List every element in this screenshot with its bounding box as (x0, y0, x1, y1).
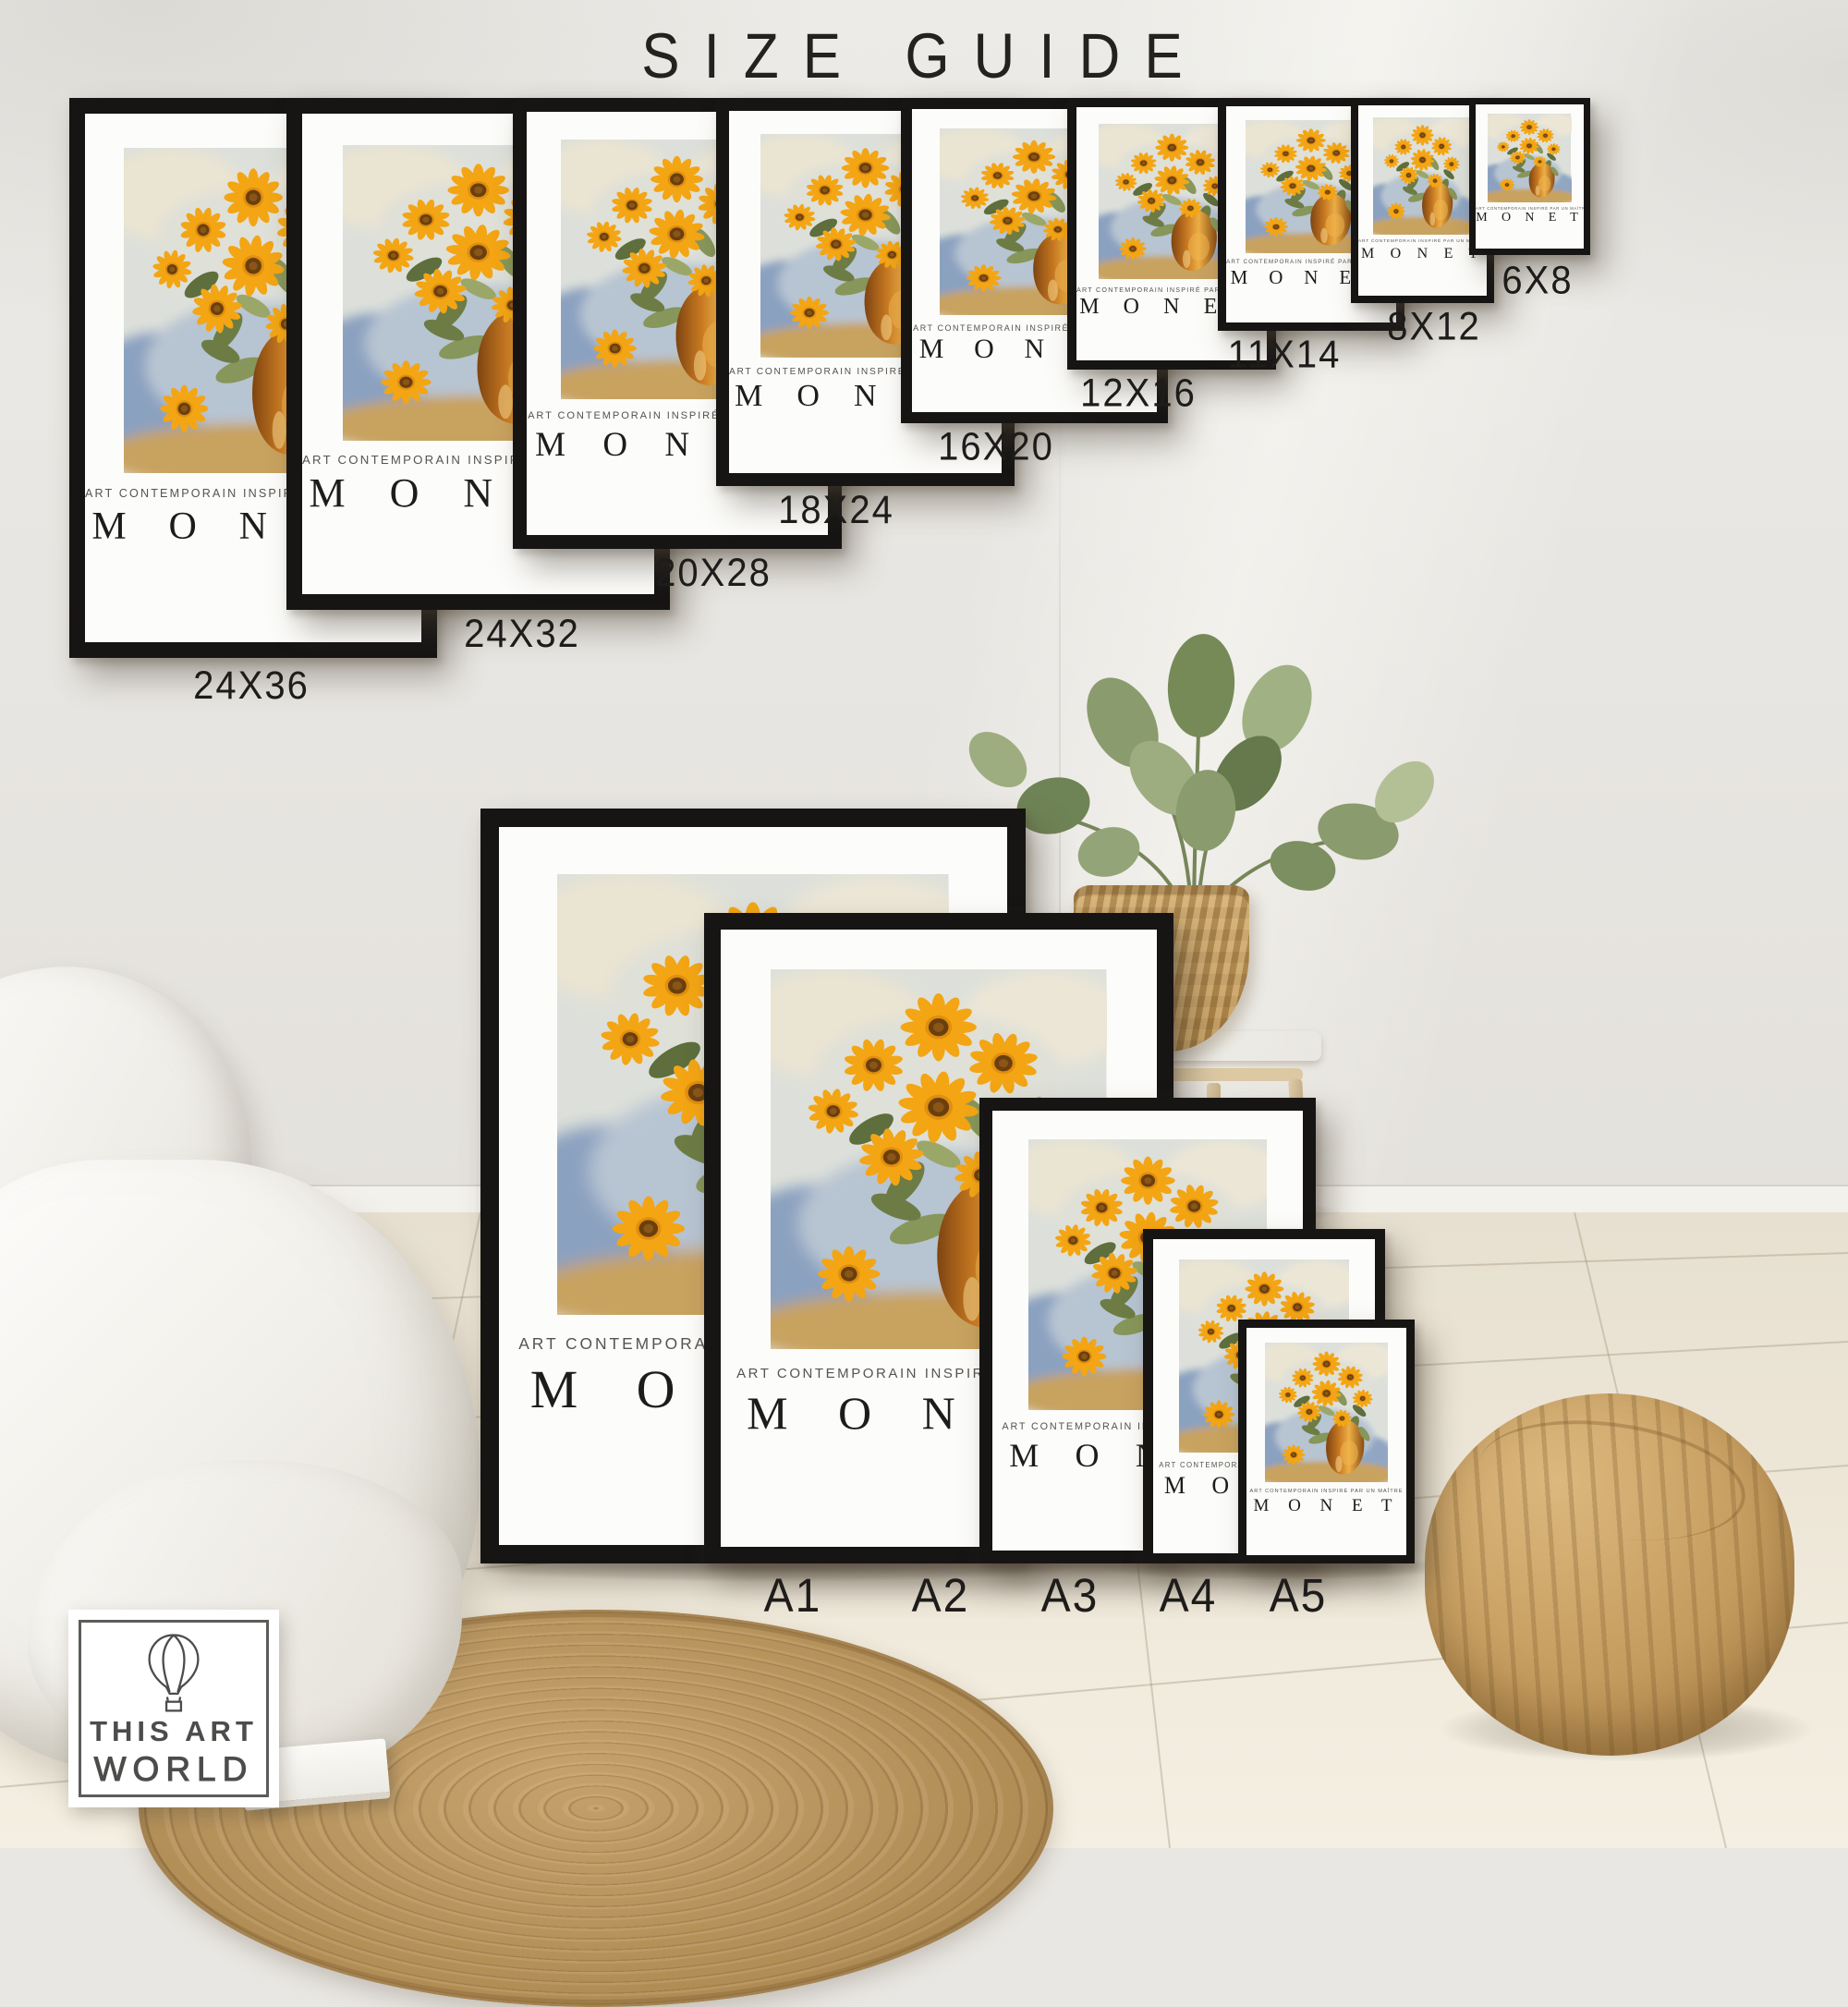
size-label-a1: A1 (764, 1569, 822, 1623)
logo-text-this-art: THIS ART (90, 1715, 258, 1748)
brand-logo: THIS ART WORLD (68, 1610, 279, 1807)
size-label-6x8: 6X8 (1501, 260, 1573, 304)
size-label-a4: A4 (1160, 1569, 1218, 1623)
poster-artist: M O N E T (1246, 1496, 1406, 1516)
logo-text-world: WORLD (94, 1750, 254, 1789)
size-label-a2: A2 (912, 1569, 970, 1623)
size-label-24x36: 24X36 (193, 664, 310, 709)
sunflower-artwork (1265, 1343, 1388, 1482)
framed-print-a5: ART CONTEMPORAIN INSPIRÉ PAR UN MAÎTRE M… (1238, 1320, 1415, 1563)
size-label-a5: A5 (1270, 1569, 1328, 1623)
framed-print-6x8: ART CONTEMPORAIN INSPIRÉ PAR UN MAÎTRE M… (1469, 98, 1590, 255)
size-label-11x14: 11X14 (1228, 334, 1342, 378)
sunflower-artwork (1373, 117, 1472, 235)
size-label-24x32: 24X32 (464, 613, 580, 657)
sunflower-artwork (1488, 114, 1571, 202)
size-label-12x16: 12X16 (1080, 372, 1197, 417)
page-title: SIZE GUIDE (641, 20, 1206, 92)
hot-air-balloon-icon (145, 1632, 202, 1713)
poster-artist: M O N E T (1358, 246, 1487, 262)
poster-mat: ART CONTEMPORAIN INSPIRÉ PAR UN MAÎTRE M… (1358, 105, 1487, 296)
size-label-8x12: 8X12 (1387, 306, 1480, 350)
poster-subtitle: ART CONTEMPORAIN INSPIRÉ PAR UN MAÎTRE (1358, 239, 1487, 244)
poster-subtitle: ART CONTEMPORAIN INSPIRÉ PAR UN MAÎTRE (1476, 206, 1584, 211)
size-label-18x24: 18X24 (778, 489, 894, 533)
poster-artist: M O N E T (1476, 211, 1584, 225)
size-label-a3: A3 (1041, 1569, 1100, 1623)
size-label-20x28: 20X28 (655, 552, 772, 596)
size-label-16x20: 16X20 (938, 426, 1054, 470)
poster-mat: ART CONTEMPORAIN INSPIRÉ PAR UN MAÎTRE M… (1476, 104, 1584, 249)
poster-mat: ART CONTEMPORAIN INSPIRÉ PAR UN MAÎTRE M… (1246, 1328, 1406, 1555)
poster-subtitle: ART CONTEMPORAIN INSPIRÉ PAR UN MAÎTRE (1246, 1489, 1406, 1494)
